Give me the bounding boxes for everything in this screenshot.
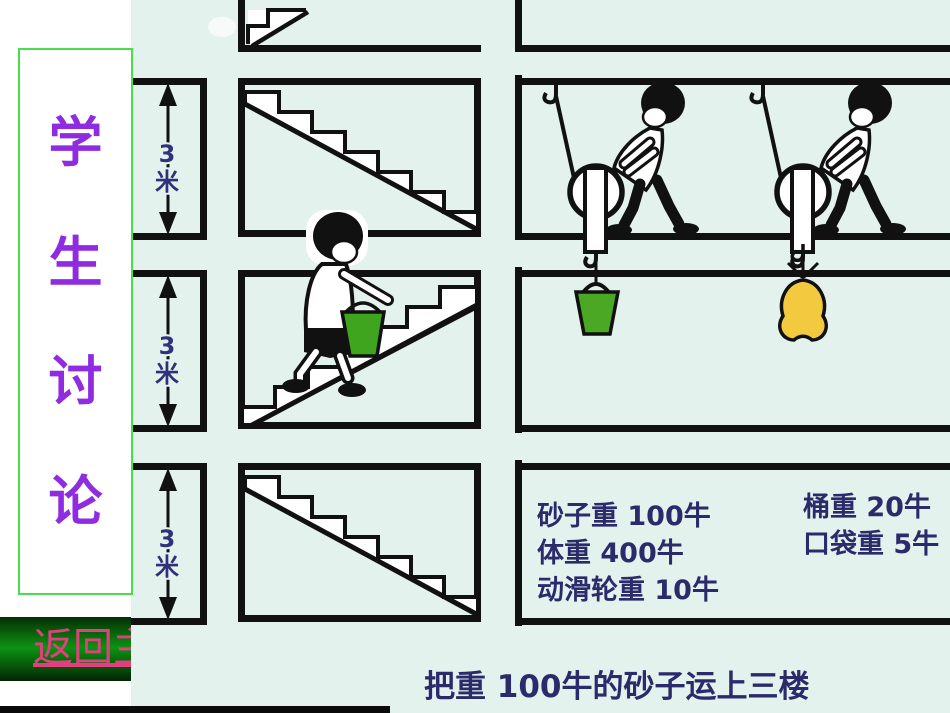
banner-char: 论: [49, 474, 103, 528]
staircase-row-1: [245, 92, 478, 230]
boy-face: [331, 241, 357, 263]
info-line-pulley: 动滑轮重 10牛: [537, 575, 719, 606]
info-line-body: 体重 400牛: [537, 538, 684, 569]
dimension-value: 3: [159, 332, 176, 360]
top-floor-fragment-right: [515, 0, 950, 51]
banner-char: 生: [49, 235, 103, 289]
boy-shoe: [338, 383, 366, 397]
dimension-unit: 米: [155, 553, 179, 581]
sack-body: [780, 280, 826, 340]
info-line-bucket: 桶重 20牛: [803, 492, 931, 523]
info-line-sack: 口袋重 5牛: [803, 529, 939, 560]
dimension-row-1: 3 米: [131, 78, 207, 240]
dimension-unit: 米: [155, 360, 179, 388]
discussion-banner: 学 生 讨 论: [18, 48, 133, 595]
hanging-sack: [780, 244, 826, 340]
sand-bucket: [342, 312, 384, 356]
caption: 把重 100牛的砂子运上三楼: [424, 669, 810, 705]
white-blob: [208, 17, 236, 37]
info-line-sand: 砂子重 100牛: [537, 501, 711, 532]
physics-illustration: 3 米 3 米 3 米: [131, 0, 950, 713]
dimension-value: 3: [159, 525, 176, 553]
banner-char: 学: [49, 115, 103, 169]
hanging-bucket-body: [576, 292, 618, 334]
dimension-value: 3: [159, 140, 176, 168]
info-box: 砂子重 100牛 体重 400牛 动滑轮重 10牛 桶重 20牛 口袋重 5牛: [537, 492, 939, 606]
top-floor-fragment-middle: [238, 0, 481, 51]
dimension-unit: 米: [155, 168, 179, 196]
dimension-row-3: 3 米: [131, 463, 207, 625]
back-button[interactable]: 返回主: [0, 617, 131, 681]
dimension-row-2: 3 米: [131, 270, 207, 432]
banner-char: 讨: [49, 354, 103, 408]
staircase-row-3: [245, 477, 478, 615]
boy-shoe: [282, 379, 310, 393]
slide-panel: 3 米 3 米 3 米: [131, 0, 950, 713]
bottom-black-strip: [0, 706, 390, 713]
back-button-label: 返回主: [0, 617, 131, 679]
